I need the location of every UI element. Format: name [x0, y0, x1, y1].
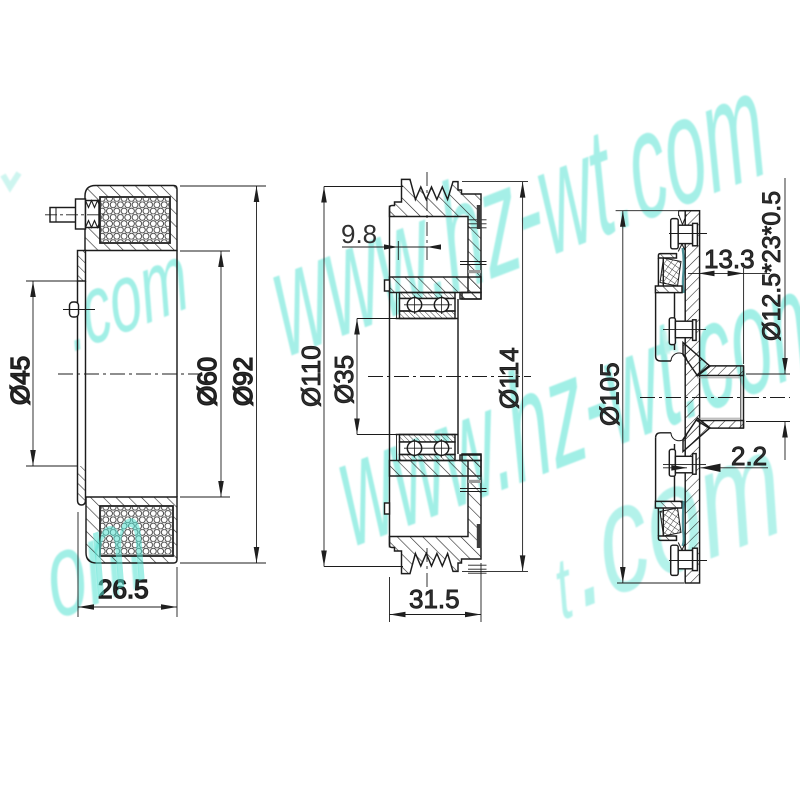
svg-text:2.2: 2.2 [731, 441, 767, 471]
svg-text:9.8: 9.8 [341, 219, 377, 249]
svg-text:Ø45: Ø45 [5, 356, 35, 405]
svg-text:31.5: 31.5 [409, 584, 460, 614]
svg-text:Ø105: Ø105 [595, 362, 625, 426]
svg-text:13.3: 13.3 [704, 244, 755, 274]
svg-text:Ø110: Ø110 [296, 345, 326, 407]
svg-text:Ø35: Ø35 [329, 355, 359, 404]
svg-text:Ø60: Ø60 [192, 357, 222, 406]
svg-text:Ø12.5*23*0.5: Ø12.5*23*0.5 [758, 191, 786, 341]
svg-text:Ø92: Ø92 [228, 357, 258, 406]
svg-text:Ø114: Ø114 [494, 347, 524, 409]
